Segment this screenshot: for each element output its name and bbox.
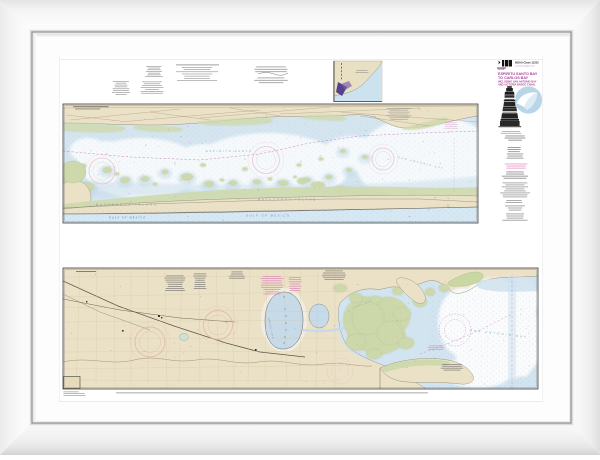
svg-text:AND VICTORIA BARGE CANAL: AND VICTORIA BARGE CANAL [498, 83, 536, 87]
svg-text:11315: 11315 [498, 69, 505, 71]
svg-text:scanned original chart: scanned original chart [515, 64, 535, 67]
svg-text:MATAGORDA ISLAND: MATAGORDA ISLAND [258, 199, 317, 202]
svg-text:ESPIRITU SANTO: ESPIRITU SANTO [206, 149, 253, 153]
svg-text:GULF OF MEXICO: GULF OF MEXICO [109, 217, 146, 220]
svg-text:TO CARLOS BAY: TO CARLOS BAY [498, 76, 529, 80]
svg-text:GULF OF MEXICO: GULF OF MEXICO [246, 213, 291, 217]
svg-text:NOAA Chart 11315: NOAA Chart 11315 [515, 60, 539, 64]
svg-text:MATAGORDA ISLAND: MATAGORDA ISLAND [96, 204, 159, 207]
